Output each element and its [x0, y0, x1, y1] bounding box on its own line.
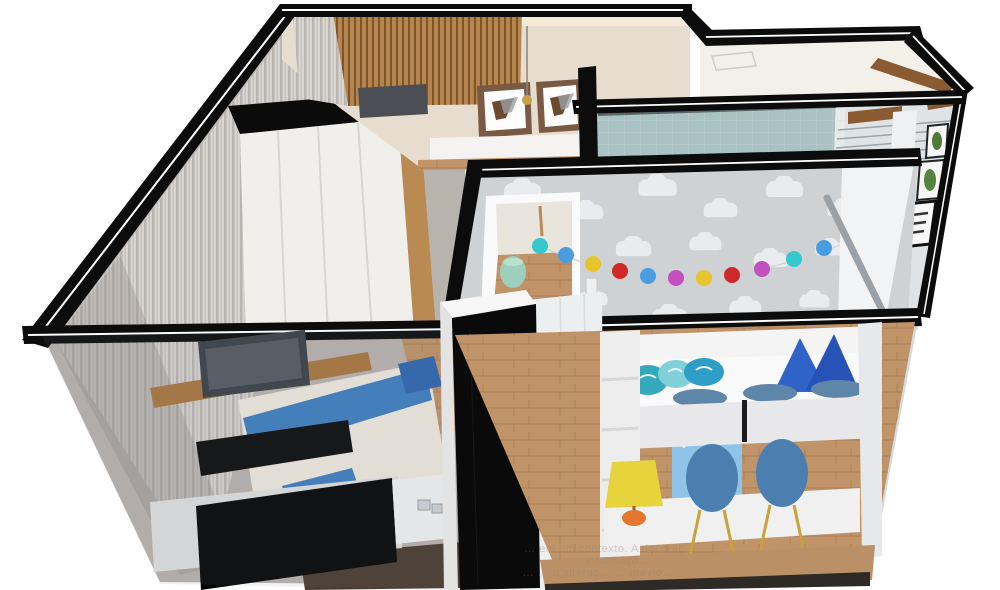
cushion-3 [811, 380, 865, 398]
bedroom-furniture [42, 328, 465, 590]
bedroom-glass-tint [42, 328, 465, 590]
platform-slot [742, 400, 747, 442]
watermark-line-1: … em um contexto. A decoraç… [524, 543, 696, 555]
garland-ball [532, 238, 548, 254]
pillow-teal-4 [684, 358, 724, 386]
watermark-line-2: … informaçõ… … [571, 555, 665, 567]
pouf-top [503, 258, 523, 266]
garland-ball [640, 268, 656, 284]
render-canvas: … em um contexto. A decoraç… … informaçõ… [0, 0, 1000, 590]
wall-living-bath [578, 66, 598, 166]
garland-ball [724, 267, 740, 283]
garland-ball [816, 240, 832, 256]
lamp-base [622, 510, 646, 526]
lamp-shade [605, 460, 663, 508]
chair-leg-glimpse [540, 206, 542, 236]
garland-ball [558, 247, 574, 263]
floorplan-render: … em um contexto. A decoraç… … informaçõ… [0, 0, 1000, 590]
light-switch [586, 278, 597, 295]
watermark-line-3: … … a alteraç… … prévio … [523, 567, 678, 579]
garland-ball [612, 263, 628, 279]
garland-ball [696, 270, 712, 286]
wall-tv [358, 84, 428, 118]
garland-ball [754, 261, 770, 277]
garland-ball [668, 270, 684, 286]
framed-art-1 [477, 82, 532, 138]
plant-frame-1 [926, 124, 948, 158]
bunk-right-post [858, 322, 882, 558]
garland-ball [786, 251, 802, 267]
garland-ball [585, 256, 601, 272]
cushion-2 [743, 384, 797, 402]
